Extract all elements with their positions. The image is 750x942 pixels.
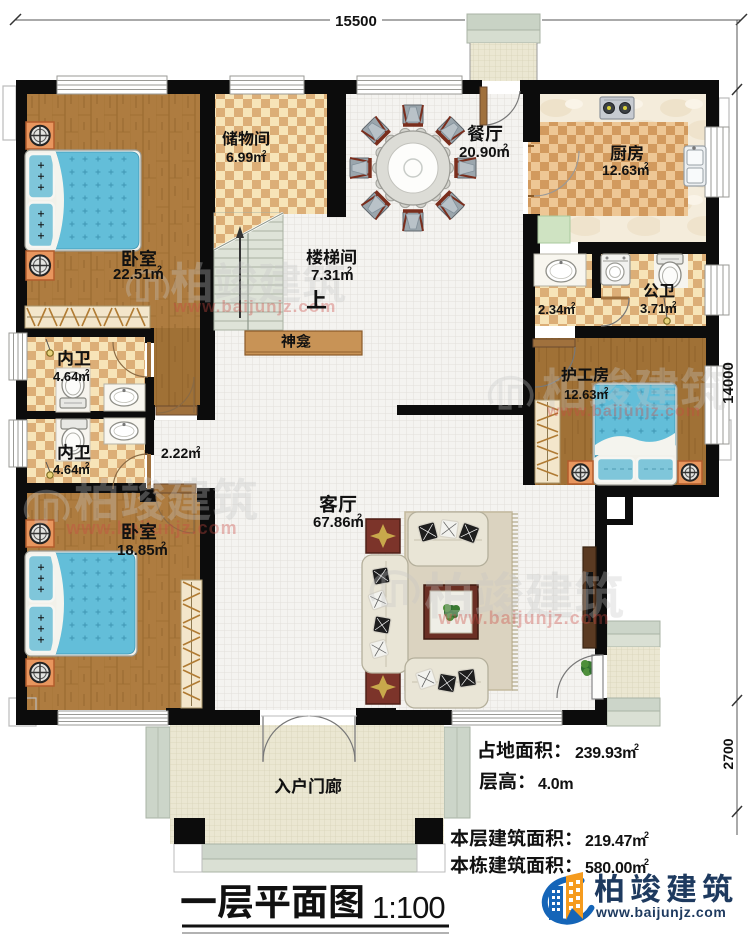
- svg-text:4.0m: 4.0m: [538, 776, 573, 793]
- svg-text:2: 2: [604, 386, 609, 395]
- svg-text:1:100: 1:100: [372, 890, 445, 925]
- svg-text:2: 2: [644, 830, 649, 840]
- svg-text:2700: 2700: [720, 738, 736, 769]
- svg-text:2: 2: [161, 540, 166, 550]
- svg-text:2: 2: [157, 264, 162, 274]
- svg-text:2: 2: [503, 142, 508, 152]
- svg-text:www.baijunjz.com: www.baijunjz.com: [546, 403, 701, 420]
- svg-text:12.63m: 12.63m: [564, 387, 608, 402]
- svg-text:2: 2: [571, 301, 576, 310]
- svg-text:2: 2: [644, 857, 649, 867]
- svg-text:219.47m: 219.47m: [585, 833, 646, 850]
- svg-text:2: 2: [357, 512, 362, 522]
- svg-text:www.baijunjz.com: www.baijunjz.com: [437, 608, 609, 628]
- svg-text:6.99m: 6.99m: [226, 149, 266, 165]
- svg-text:2: 2: [644, 161, 649, 170]
- svg-text:2: 2: [85, 368, 90, 377]
- svg-text:2: 2: [347, 265, 352, 275]
- svg-text:2.34m: 2.34m: [538, 302, 575, 317]
- svg-text:2.22m: 2.22m: [161, 445, 201, 461]
- svg-text:15500: 15500: [335, 13, 377, 30]
- svg-text:2: 2: [85, 461, 90, 470]
- svg-text:www.baijunjz.com: www.baijunjz.com: [595, 904, 726, 920]
- svg-text:2: 2: [634, 742, 639, 752]
- svg-text:239.93m: 239.93m: [575, 745, 636, 762]
- svg-text:2: 2: [196, 445, 201, 454]
- svg-text:14000: 14000: [720, 362, 737, 404]
- svg-text:12.63m: 12.63m: [602, 162, 649, 178]
- svg-text:2: 2: [262, 149, 267, 158]
- svg-text:2: 2: [672, 300, 677, 309]
